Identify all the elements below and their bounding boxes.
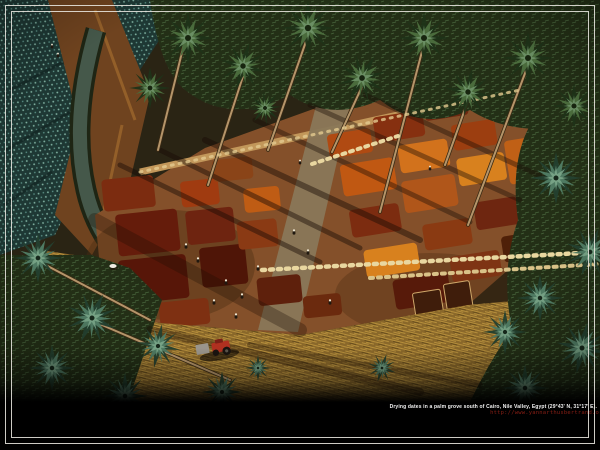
wallpaper-root: Drying dates in a palm grove south of Ca…	[0, 0, 600, 450]
caption-band: Drying dates in a palm grove south of Ca…	[0, 402, 600, 450]
photo-credit-url: http://www.yannarthusbertrand.org	[490, 410, 600, 416]
photo-bottom-fade	[0, 348, 600, 402]
photo-aerial-palm-grove	[0, 0, 600, 402]
photo-vignette	[0, 0, 600, 402]
